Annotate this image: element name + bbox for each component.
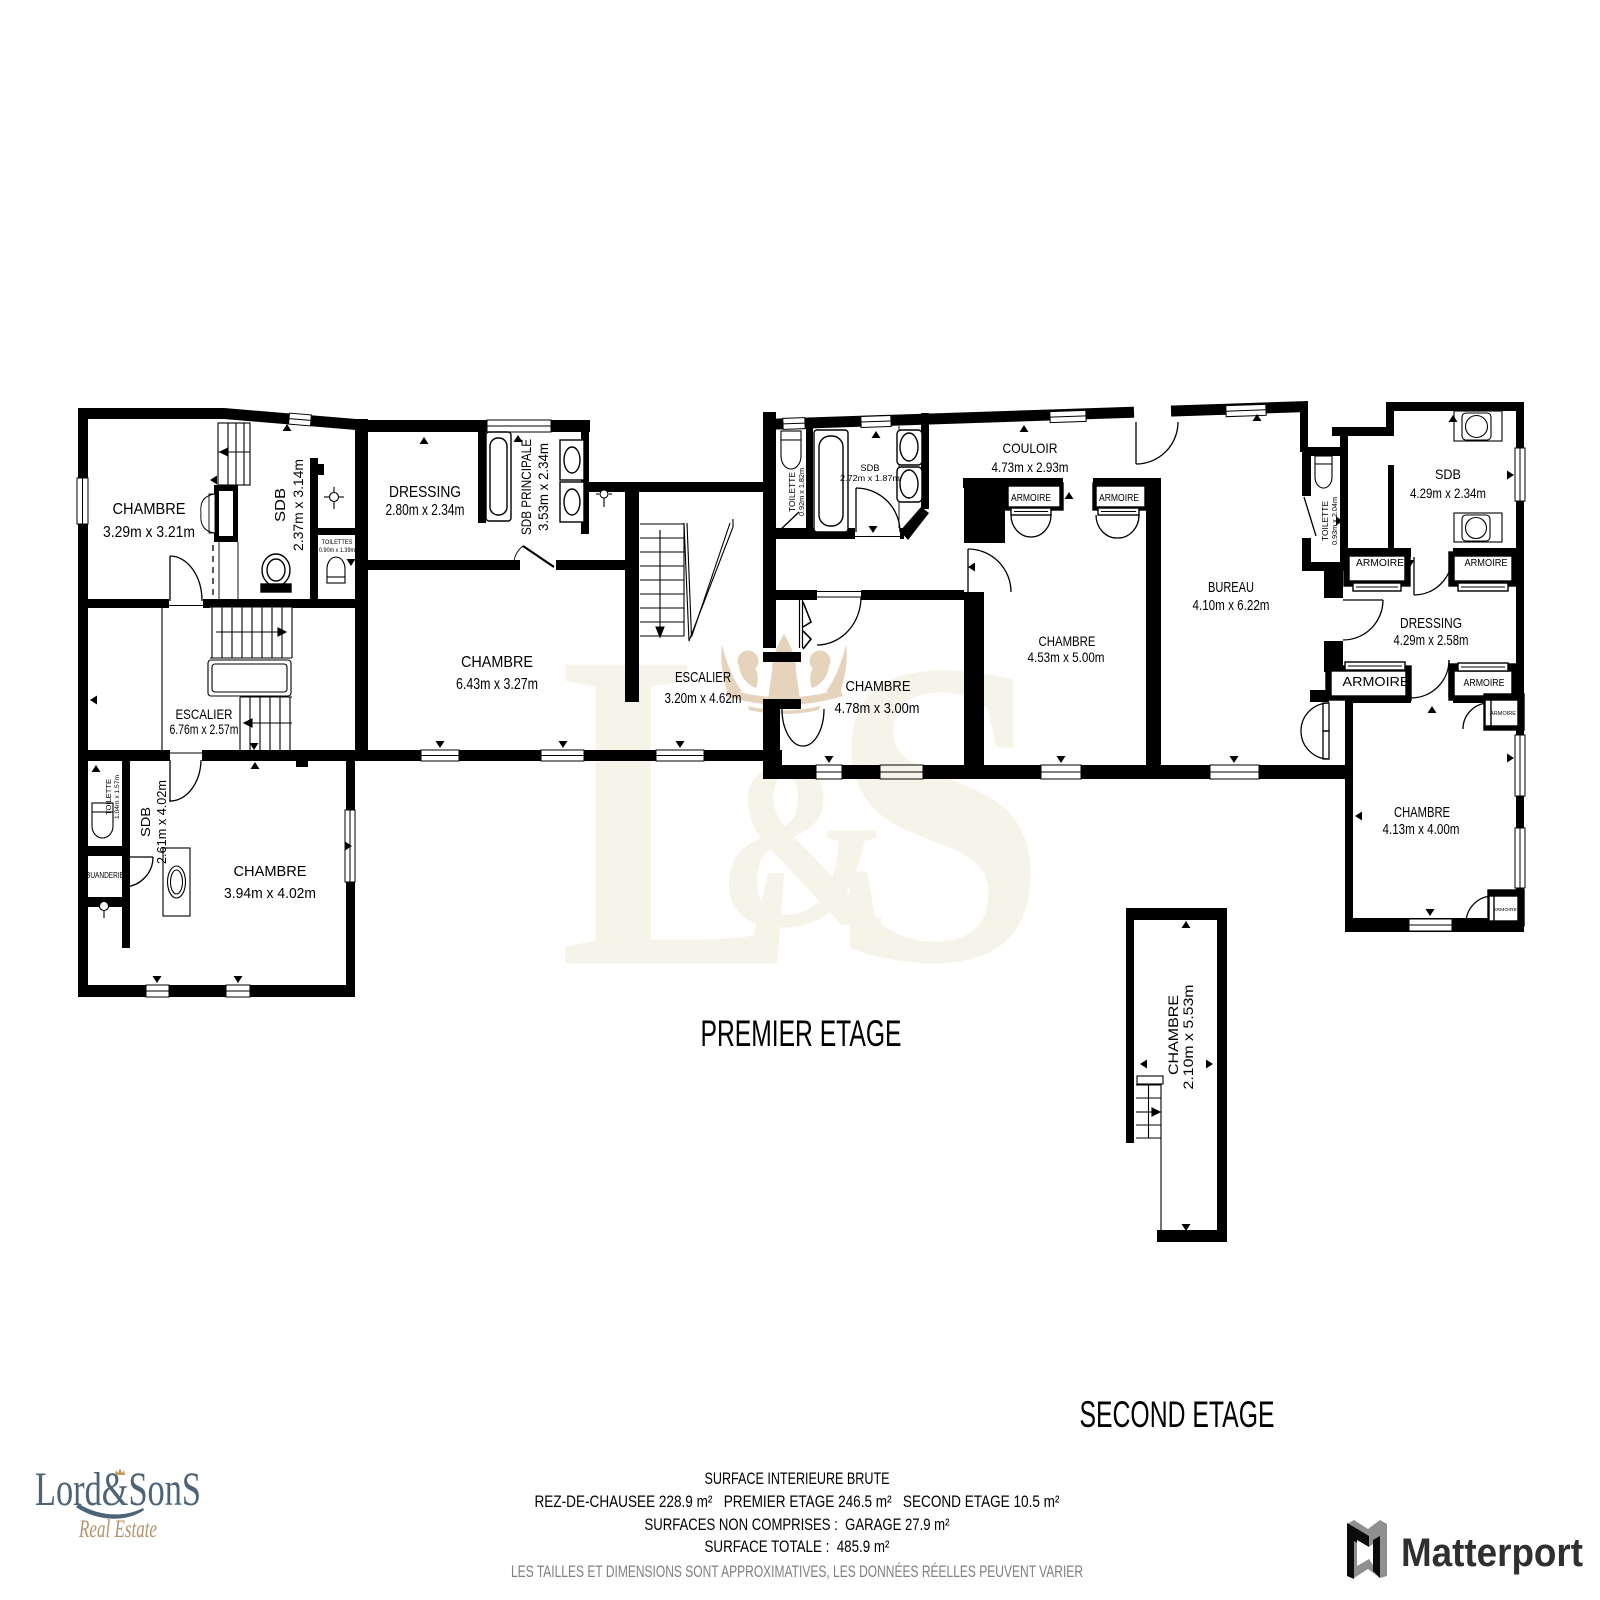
svg-text:ARMOIRE: ARMOIRE (1011, 492, 1051, 504)
svg-text:CHAMBRE: CHAMBRE (461, 654, 533, 671)
svg-text:ARMOIRE: ARMOIRE (1099, 492, 1139, 504)
svg-text:3.94m x 4.02m: 3.94m x 4.02m (224, 885, 316, 902)
svg-text:6.76m x 2.57m: 6.76m x 2.57m (170, 721, 239, 737)
svg-text:TOILETTES: TOILETTES (322, 539, 354, 546)
svg-text:3.29m x 3.21m: 3.29m x 3.21m (103, 524, 195, 541)
svg-text:4.53m x 5.00m: 4.53m x 5.00m (1028, 649, 1105, 665)
svg-text:BUANDERIE: BUANDERIE (86, 871, 124, 880)
svg-text:CHAMBRE: CHAMBRE (234, 863, 307, 880)
svg-text:CHAMBRE: CHAMBRE (846, 679, 911, 695)
svg-text:3.20m x 4.62m: 3.20m x 4.62m (665, 691, 742, 707)
svg-text:SDB: SDB (272, 488, 289, 522)
svg-text:ARMOIRE: ARMOIRE (1356, 557, 1404, 569)
svg-text:COULOIR: COULOIR (1003, 440, 1058, 456)
svg-text:2.72m x 1.87m: 2.72m x 1.87m (840, 474, 900, 483)
svg-text:DRESSING: DRESSING (1400, 616, 1462, 632)
svg-text:BUREAU: BUREAU (1208, 580, 1254, 596)
svg-text:3.53m x 2.34m: 3.53m x 2.34m (535, 443, 551, 531)
svg-text:2.10m x 5.53m: 2.10m x 5.53m (1180, 985, 1196, 1090)
svg-text:SURFACE TOTALE : 485.9 m²: SURFACE TOTALE : 485.9 m² (705, 1537, 890, 1556)
svg-text:CHAMBRE: CHAMBRE (1165, 995, 1181, 1075)
svg-text:ARMOIRE: ARMOIRE (1465, 558, 1508, 569)
svg-text:2.80m x 2.34m: 2.80m x 2.34m (386, 502, 465, 519)
svg-text:TOILETTE: TOILETTE (104, 779, 113, 815)
svg-text:ARMOIRE: ARMOIRE (1490, 711, 1517, 717)
svg-text:ESCALIER: ESCALIER (176, 706, 233, 722)
svg-text:CHAMBRE: CHAMBRE (1039, 633, 1096, 649)
svg-text:SURFACES NON COMPRISES : GARA: SURFACES NON COMPRISES : GARAGE 27.9 m² (645, 1515, 950, 1534)
svg-text:4.78m x 3.00m: 4.78m x 3.00m (835, 701, 920, 717)
svg-text:ARMOIRE: ARMOIRE (1464, 678, 1505, 689)
svg-text:CHAMBRE: CHAMBRE (113, 501, 186, 518)
svg-text:SDB: SDB (861, 463, 880, 473)
svg-text:2.61m x 4.02m: 2.61m x 4.02m (154, 780, 169, 864)
svg-text:ARMOIRE: ARMOIRE (1343, 675, 1410, 689)
svg-text:SDB: SDB (138, 807, 153, 837)
svg-text:0.92m x 1.82m: 0.92m x 1.82m (799, 468, 806, 516)
svg-text:PREMIER ETAGE: PREMIER ETAGE (701, 1012, 902, 1054)
svg-text:SECOND ETAGE: SECOND ETAGE (1080, 1393, 1275, 1435)
svg-text:Matterport: Matterport (1401, 1531, 1583, 1575)
svg-text:SDB PRINCIPALE: SDB PRINCIPALE (518, 439, 534, 535)
svg-text:S: S (829, 570, 1047, 1054)
svg-text:ARMOIRE: ARMOIRE (1493, 907, 1517, 912)
svg-text:2.37m x 3.14m: 2.37m x 3.14m (290, 459, 306, 551)
svg-text:1.04m x 1.57m: 1.04m x 1.57m (114, 775, 121, 819)
svg-text:0.93m x 2.04m: 0.93m x 2.04m (1332, 497, 1339, 545)
svg-text:ESCALIER: ESCALIER (675, 670, 731, 686)
svg-text:TOILETTE: TOILETTE (788, 472, 797, 512)
svg-text:SURFACE INTERIEURE BRUTE: SURFACE INTERIEURE BRUTE (705, 1469, 890, 1488)
svg-text:6.43m x 3.27m: 6.43m x 3.27m (456, 676, 538, 693)
svg-text:TOILETTE: TOILETTE (1321, 501, 1330, 541)
svg-text:4.29m x 2.58m: 4.29m x 2.58m (1394, 633, 1469, 649)
svg-text:REZ-DE-CHAUSEE 228.9 m² PREM: REZ-DE-CHAUSEE 228.9 m² PREMIER ETAGE 24… (535, 1492, 1060, 1511)
svg-text:Lord&SonS: Lord&SonS (35, 1463, 201, 1516)
svg-text:LES TAILLES ET DIMENSIONS SONT: LES TAILLES ET DIMENSIONS SONT APPROXIMA… (511, 1562, 1083, 1581)
svg-text:DRESSING: DRESSING (389, 484, 461, 501)
svg-text:0.90m x 1.39m: 0.90m x 1.39m (319, 548, 355, 554)
svg-text:CHAMBRE: CHAMBRE (1394, 805, 1450, 821)
svg-text:4.13m x 4.00m: 4.13m x 4.00m (1383, 822, 1460, 838)
svg-text:4.29m x 2.34m: 4.29m x 2.34m (1410, 485, 1486, 501)
svg-text:4.10m x 6.22m: 4.10m x 6.22m (1193, 598, 1270, 614)
svg-text:4.73m x 2.93m: 4.73m x 2.93m (992, 459, 1069, 475)
svg-text:Real Estate: Real Estate (78, 1516, 157, 1543)
svg-text:SDB: SDB (1435, 466, 1461, 482)
